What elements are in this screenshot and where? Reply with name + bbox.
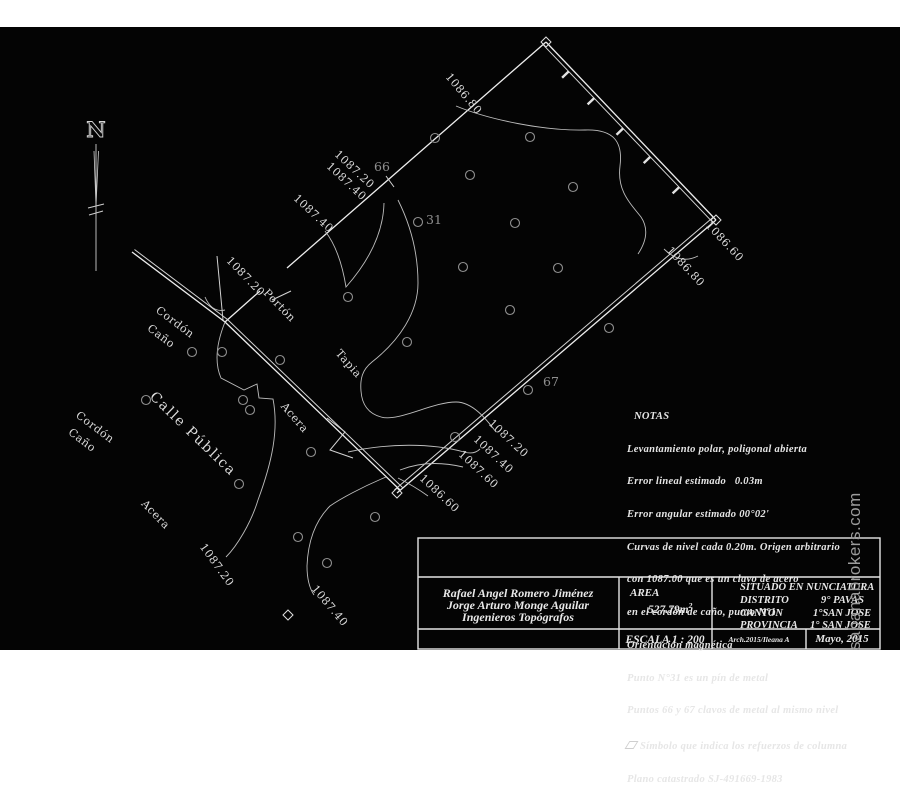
note-line: Levantamiento polar, poligonal abierta [627,445,889,456]
column-reinforcement-icon [625,741,639,749]
survey-plan-sheet: N [0,0,900,675]
note-line: Plano catastrado SJ-491669-1983 [627,775,889,786]
notes-title: NOTAS [627,412,889,423]
note-line: Símbolo que indica los refuerzos de colu… [627,741,889,753]
note-line: Error lineal estimado 0.03m [627,477,889,488]
surveyor-title: Ingenieros Topógrafos [461,610,574,624]
watermark: sabanabrokers.com [845,492,865,650]
point-67-label: 67 [543,374,559,389]
point-31-label: 31 [426,212,442,227]
note-line: Punto N°31 es un pín de metal [627,674,889,685]
note-text: Símbolo que indica los refuerzos de colu… [640,741,847,752]
point-66-label: 66 [374,159,390,174]
north-letter: N [86,117,105,142]
note-line: Puntos 66 y 67 clavos de metal al mismo … [627,706,889,717]
